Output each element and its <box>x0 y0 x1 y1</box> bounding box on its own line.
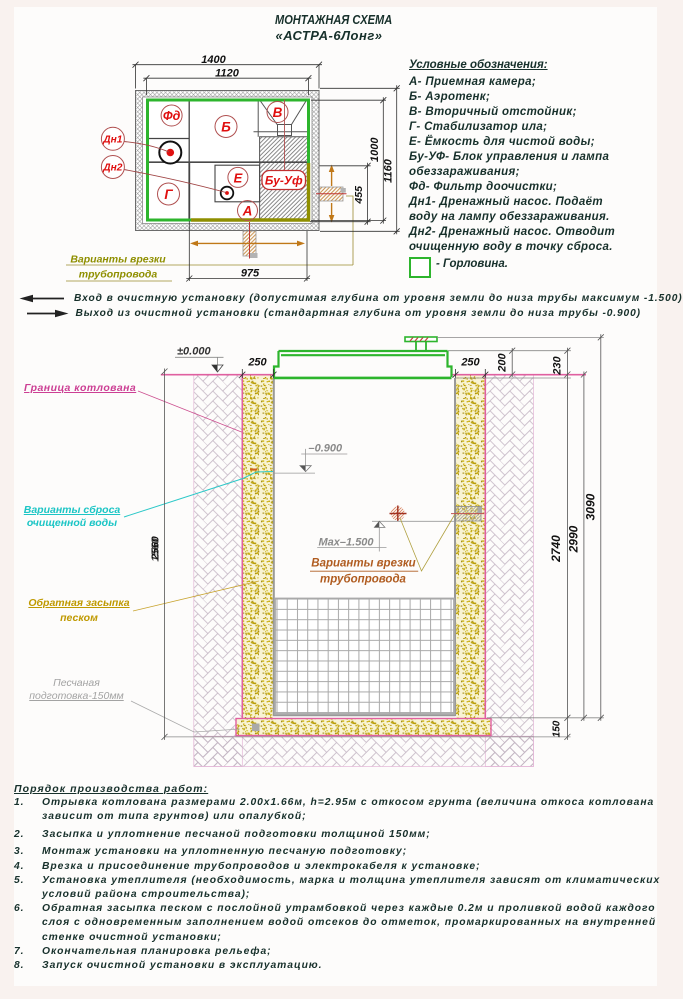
svg-text:Max–1.500: Max–1.500 <box>319 537 375 549</box>
svg-text:трубопровода: трубопровода <box>320 574 407 586</box>
svg-text:3090: 3090 <box>583 493 597 520</box>
svg-text:150: 150 <box>552 720 563 737</box>
svg-text:2990: 2990 <box>566 525 580 553</box>
svg-text:975: 975 <box>241 268 260 280</box>
svg-text:250: 250 <box>460 357 480 369</box>
svg-text:Г: Г <box>164 187 173 202</box>
svg-text:Дн2: Дн2 <box>102 163 123 174</box>
svg-text:1120: 1120 <box>215 68 240 80</box>
svg-text:455: 455 <box>353 186 365 205</box>
svg-text:Б: Б <box>221 120 231 135</box>
svg-text:230: 230 <box>552 355 564 375</box>
svg-text:1000: 1000 <box>369 137 381 162</box>
svg-text:Варианты врезки: Варианты врезки <box>70 254 166 266</box>
svg-text:Дн1: Дн1 <box>102 135 123 146</box>
svg-text:Фд: Фд <box>163 109 181 123</box>
svg-text:1160: 1160 <box>383 158 395 183</box>
svg-text:–0.900: –0.900 <box>309 443 344 455</box>
svg-text:Бу-Уф: Бу-Уф <box>265 174 303 188</box>
svg-text:2740: 2740 <box>549 535 563 563</box>
svg-text:±0.000: ±0.000 <box>177 346 211 358</box>
svg-text:1400: 1400 <box>201 54 226 66</box>
svg-text:1560: 1560 <box>150 538 162 562</box>
svg-text:Е: Е <box>234 170 243 185</box>
svg-text:трубопровода: трубопровода <box>79 269 158 281</box>
svg-text:В: В <box>273 105 283 120</box>
svg-text:200: 200 <box>497 352 509 372</box>
svg-text:А: А <box>242 204 253 219</box>
svg-text:Варианты врезки: Варианты врезки <box>311 558 415 570</box>
svg-text:250: 250 <box>247 357 267 369</box>
